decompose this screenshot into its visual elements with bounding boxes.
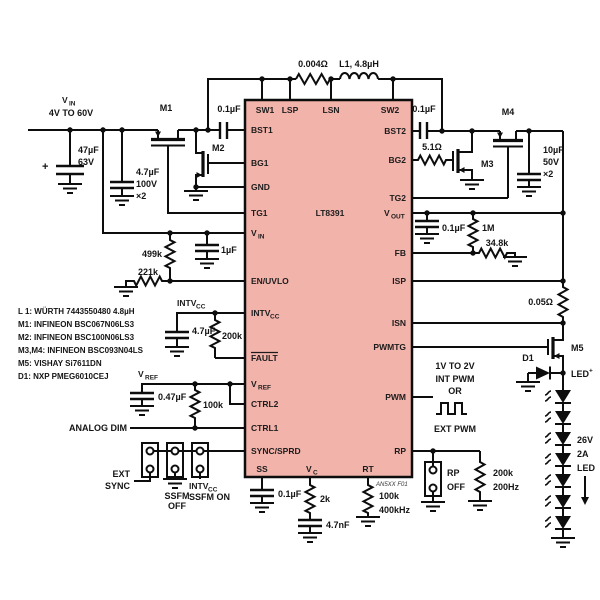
ground (516, 382, 540, 391)
label-r-isense: 0.05Ω (528, 297, 553, 307)
label-c-vout: 0.1µF (442, 223, 466, 233)
mosfet-m3 (453, 131, 472, 180)
cap-polarity-plus: + (42, 161, 48, 173)
bom-line: M5: VISHAY Si7611DN (18, 359, 102, 368)
label-r-rt: 100k (379, 491, 400, 501)
pwm-waveform-icon (436, 403, 467, 414)
cap-ss (250, 490, 274, 496)
label-l1: L1, 4.8µH (339, 59, 379, 69)
schematic-svg: V IN 4V TO 60V + 47µF 63V 4.7µF 100V ×2 … (0, 0, 600, 600)
label-r-bg2: 5.1Ω (422, 142, 442, 152)
ground (298, 533, 322, 542)
label-m4: M4 (502, 107, 515, 117)
pin-vout: V (384, 208, 390, 218)
pin-intvcc: INTV (251, 308, 271, 318)
jumper-ssfm-off (167, 443, 183, 477)
led-symbol (545, 474, 571, 487)
pin-isn: ISN (392, 318, 406, 328)
pin-lsp: LSP (282, 105, 299, 115)
label-r-ind: 0.004Ω (298, 59, 328, 69)
ground (58, 184, 82, 193)
label-r-fb-bot: 34.8k (486, 238, 510, 248)
analog-dim-label: ANALOG DIM (69, 423, 127, 433)
pin-pwmtg: PWMTG (373, 342, 406, 352)
pin-rp: RP (394, 446, 406, 456)
label-m5: M5 (571, 343, 584, 353)
pin-vc: V (306, 464, 312, 474)
label-c-ss: 0.1µF (278, 489, 302, 499)
ic-body (245, 100, 412, 477)
pwm-note-4: EXT PWM (434, 424, 476, 434)
label-c-out-qty: ×2 (543, 169, 553, 179)
pin-lsn: LSN (323, 105, 340, 115)
ssfm-off-label-2: OFF (168, 501, 186, 511)
pin-rt: RT (362, 464, 374, 474)
pin-pwm: PWM (385, 392, 406, 402)
label-c-in-bulk-v: 63V (78, 157, 94, 167)
label-c-bst2: 0.1µF (412, 104, 436, 114)
resistor-200k-rp (476, 451, 485, 501)
label-c-in-cer-v: 100V (136, 179, 157, 189)
led-plus-sup: + (589, 368, 593, 375)
label-r-fb-top: 1M (482, 223, 495, 233)
ground (195, 259, 219, 268)
label-c-vref: 0.47µF (158, 392, 187, 402)
pin-sw2: SW2 (381, 105, 400, 115)
label-r-rp: 200k (493, 468, 514, 478)
resistor-2k (306, 477, 315, 518)
label-r-rt-f: 400kHz (379, 505, 411, 515)
led-symbol (545, 411, 571, 424)
ground (250, 503, 274, 512)
pwm-note-2: INT PWM (436, 374, 475, 384)
inductor-l1 (340, 73, 378, 79)
led-rating-led: LED (577, 463, 596, 473)
ground (184, 191, 208, 200)
cap-vc (298, 520, 322, 526)
cap-intvcc (165, 332, 189, 338)
pin-vc-sub: C (313, 470, 318, 477)
led-current-arrow (581, 476, 589, 505)
cap-vout (415, 221, 439, 227)
ground (415, 234, 439, 243)
led-symbol (545, 516, 571, 529)
pin-intvcc-sub: CC (270, 314, 280, 321)
pin-bst2: BST2 (384, 126, 406, 136)
led-symbol (545, 432, 571, 445)
ssfm-off-label-1: SSFM (164, 491, 189, 501)
label-r-vc: 2k (320, 494, 331, 504)
intvcc-node-label: INTV (177, 298, 197, 308)
bom-line: L 1: WÜRTH 7443550480 4.8µH (18, 307, 135, 316)
led-rating-v: 26V (577, 435, 593, 445)
ground (517, 187, 541, 196)
pin-isp: ISP (392, 276, 406, 286)
cap-vref (130, 393, 154, 399)
resistor-inductor-sense (296, 74, 330, 84)
ground (114, 287, 138, 296)
pin-vref-sub: REF (258, 385, 271, 392)
rp-off-label-2: OFF (447, 482, 465, 492)
vin-range-label: 4V TO 60V (49, 108, 93, 118)
ground (110, 196, 134, 205)
pin-bg2: BG2 (389, 155, 407, 165)
vref-node-label: V (138, 369, 144, 379)
pin-ctrl2: CTRL2 (251, 399, 279, 409)
label-m1: M1 (160, 103, 173, 113)
resistor-221k (126, 277, 170, 288)
label-m3: M3 (481, 159, 494, 169)
ext-sync-label-1: EXT (112, 469, 130, 479)
pin-vout-sub: OUT (391, 214, 405, 221)
rp-off-label-1: RP (447, 468, 460, 478)
pin-fb: FB (395, 248, 406, 258)
bom-line: M1: INFINEON BSC067N06LS3 (18, 320, 135, 329)
pin-vin-sub: IN (258, 234, 265, 241)
figure-ref: AN5XX F01 (375, 482, 408, 488)
label-r-rp-f: 200Hz (493, 482, 520, 492)
led-rating-a: 2A (577, 449, 589, 459)
cap-bst2 (420, 122, 427, 139)
ground (163, 479, 187, 488)
pin-fault: FAULT (251, 353, 279, 363)
jumper-ssfm-on (192, 443, 208, 477)
mosfet-m1 (151, 130, 185, 146)
label-m2: M2 (212, 143, 225, 153)
cap-bst1 (220, 122, 227, 139)
bom-line: D1: NXP PMEG6010CEJ (18, 372, 109, 381)
pin-vref: V (251, 379, 257, 389)
pin-ss: SS (256, 464, 268, 474)
vin-source-label: V (62, 95, 68, 105)
pwm-note-3: OR (448, 386, 462, 396)
jumper-ext-sync (142, 443, 158, 477)
pin-vin: V (251, 228, 257, 238)
led-symbol (545, 390, 571, 403)
label-c-in-cer: 4.7µF (136, 167, 160, 177)
label-r-fault: 200k (222, 331, 243, 341)
cap-10uf-out (517, 174, 541, 180)
diode-d1 (536, 367, 550, 380)
ground (503, 257, 527, 266)
resistor-100k-ctrl (191, 384, 200, 428)
ground (551, 538, 575, 547)
ground (165, 347, 189, 356)
led-string (545, 390, 589, 529)
pin-ctrl1: CTRL1 (251, 423, 279, 433)
jumper-rp-off (425, 462, 441, 496)
pin-sync-sprd: SYNC/SPRD (251, 446, 301, 456)
ground (421, 502, 445, 511)
label-r-en-top: 499k (142, 249, 163, 259)
pin-tg2: TG2 (389, 193, 406, 203)
intvcc-node-sub: CC (196, 304, 206, 311)
resistor-led-sense (559, 281, 568, 323)
bom-line: M2: INFINEON BSC100N06LS3 (18, 333, 135, 342)
label-d1: D1 (522, 353, 534, 363)
bom-list: L 1: WÜRTH 7443550480 4.8µH M1: INFINEON… (18, 307, 144, 381)
pin-sw1: SW1 (256, 105, 275, 115)
schematic-canvas: V IN 4V TO 60V + 47µF 63V 4.7µF 100V ×2 … (0, 0, 600, 600)
label-c-out-v: 50V (543, 157, 559, 167)
mosfet-m5 (548, 323, 563, 373)
ground (356, 517, 380, 526)
label-c-in-bulk: 47µF (78, 145, 99, 155)
ground (460, 180, 484, 189)
vref-node-sub: REF (145, 375, 158, 382)
pin-bg1: BG1 (251, 158, 269, 168)
cap-4u7-input (110, 182, 134, 188)
ground (468, 501, 492, 510)
label-c-vc: 4.7nF (326, 520, 350, 530)
ssfm-on-label: SSFM ON (189, 492, 230, 502)
label-r-ctrl: 100k (203, 400, 224, 410)
led-plus-label: LED (571, 369, 590, 379)
vin-source-sub: IN (69, 101, 76, 108)
ic-part-number: LT8391 (316, 208, 345, 218)
bom-line: M3,M4: INFINEON BSC093N04LS (18, 346, 144, 355)
resistor-499k (166, 233, 175, 281)
label-c-out: 10µF (543, 145, 564, 155)
label-c-vin: 1µF (221, 245, 237, 255)
led-symbol (545, 453, 571, 466)
pin-gnd: GND (251, 182, 270, 192)
cap-47uf-polarized (56, 166, 84, 174)
resistor-100k-rt (364, 477, 373, 517)
label-r-en-bot: 221k (138, 267, 159, 277)
resistor-5r1 (412, 156, 453, 165)
label-c-intvcc: 4.7µF (192, 326, 216, 336)
ground (130, 406, 154, 415)
cap-1uf-vin (195, 245, 219, 251)
resistor-1m (469, 213, 478, 253)
pin-bst1: BST1 (251, 125, 273, 135)
led-symbol (545, 495, 571, 508)
pin-en-uvlo: EN/UVLO (251, 276, 289, 286)
label-c-in-cer-qty: ×2 (136, 191, 146, 201)
intvcc-jumper-label: INTV (189, 481, 209, 491)
pin-tg1: TG1 (251, 208, 268, 218)
ext-sync-label-2: SYNC (105, 481, 131, 491)
label-c-bst1: 0.1µF (217, 104, 241, 114)
pwm-note-1: 1V TO 2V (435, 361, 474, 371)
